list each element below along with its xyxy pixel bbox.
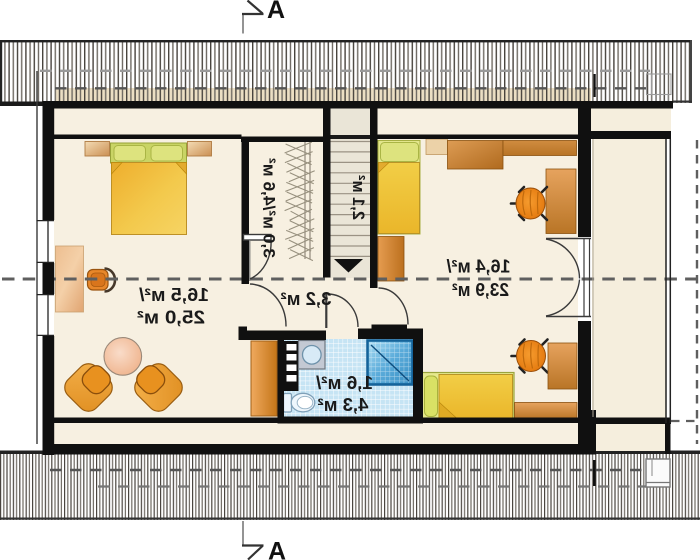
svg-text:4,3 м²: 4,3 м² bbox=[318, 395, 369, 415]
svg-text:3,0 м²/4,6 м²: 3,0 м²/4,6 м² bbox=[260, 158, 279, 258]
svg-text:A: A bbox=[268, 538, 286, 560]
svg-text:A: A bbox=[267, 0, 285, 24]
svg-text:23,9 м²: 23,9 м² bbox=[452, 280, 509, 300]
svg-text:2,1 м²: 2,1 м² bbox=[349, 175, 368, 220]
svg-text:16,4 м²/: 16,4 м²/ bbox=[447, 257, 511, 277]
svg-text:16,5 м²/: 16,5 м²/ bbox=[139, 285, 209, 305]
svg-text:3,2 м²: 3,2 м² bbox=[281, 289, 332, 309]
svg-text:25,0 м²: 25,0 м² bbox=[137, 308, 205, 328]
svg-text:1,6 м²/: 1,6 м²/ bbox=[316, 373, 373, 393]
